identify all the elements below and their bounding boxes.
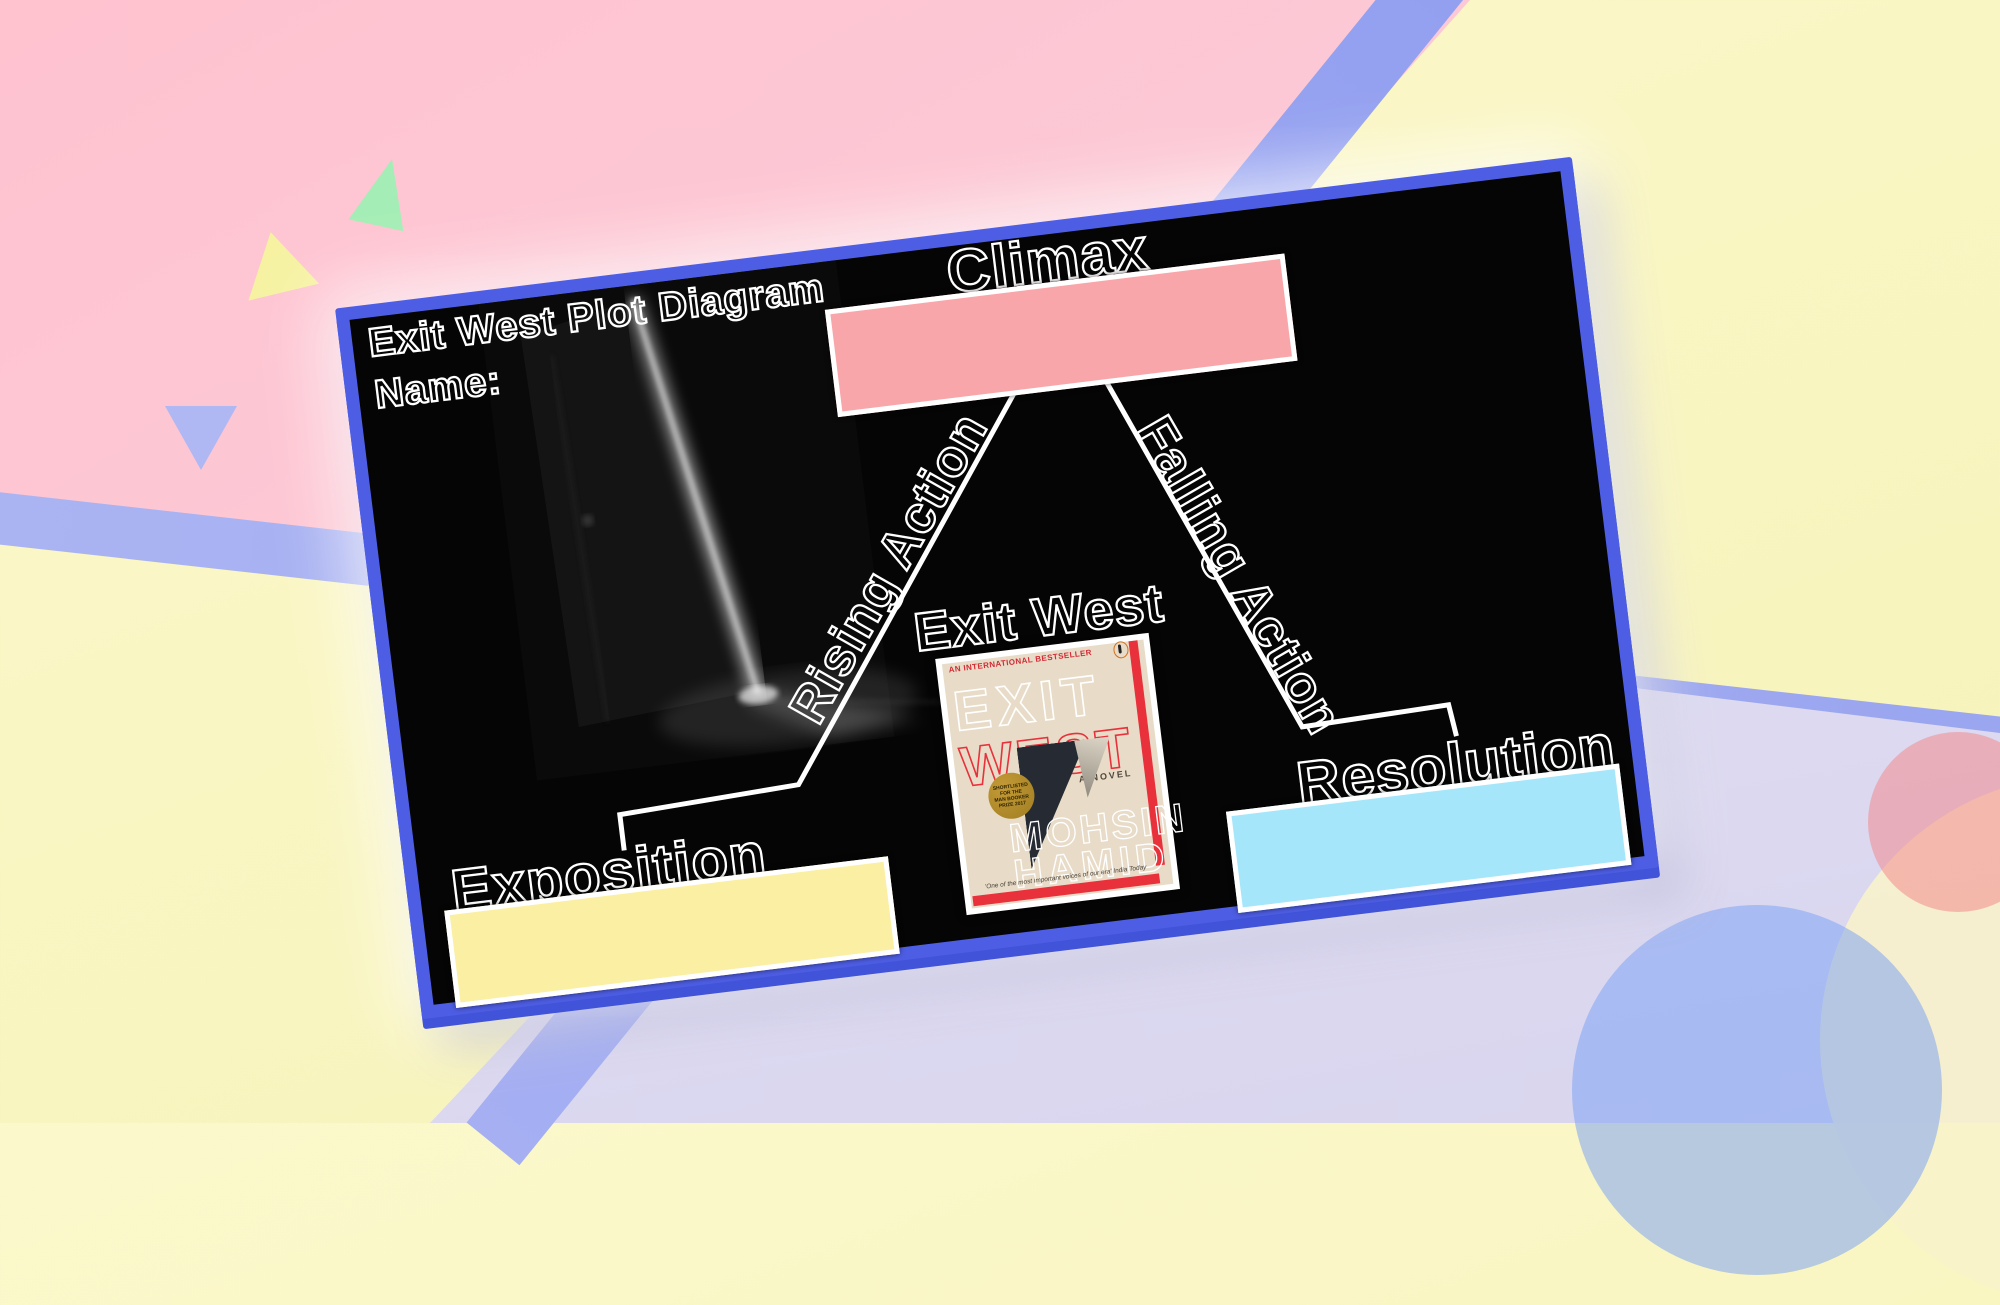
decor-blue-circle	[1572, 905, 1942, 1275]
plot-diagram-slide: Exit West Plot Diagram Name: Climax Risi…	[335, 157, 1659, 1020]
exit-west-book-cover: AN INTERNATIONAL BESTSELLER EXIT WEST A …	[935, 633, 1180, 915]
decor-lavender-triangle	[165, 406, 237, 470]
